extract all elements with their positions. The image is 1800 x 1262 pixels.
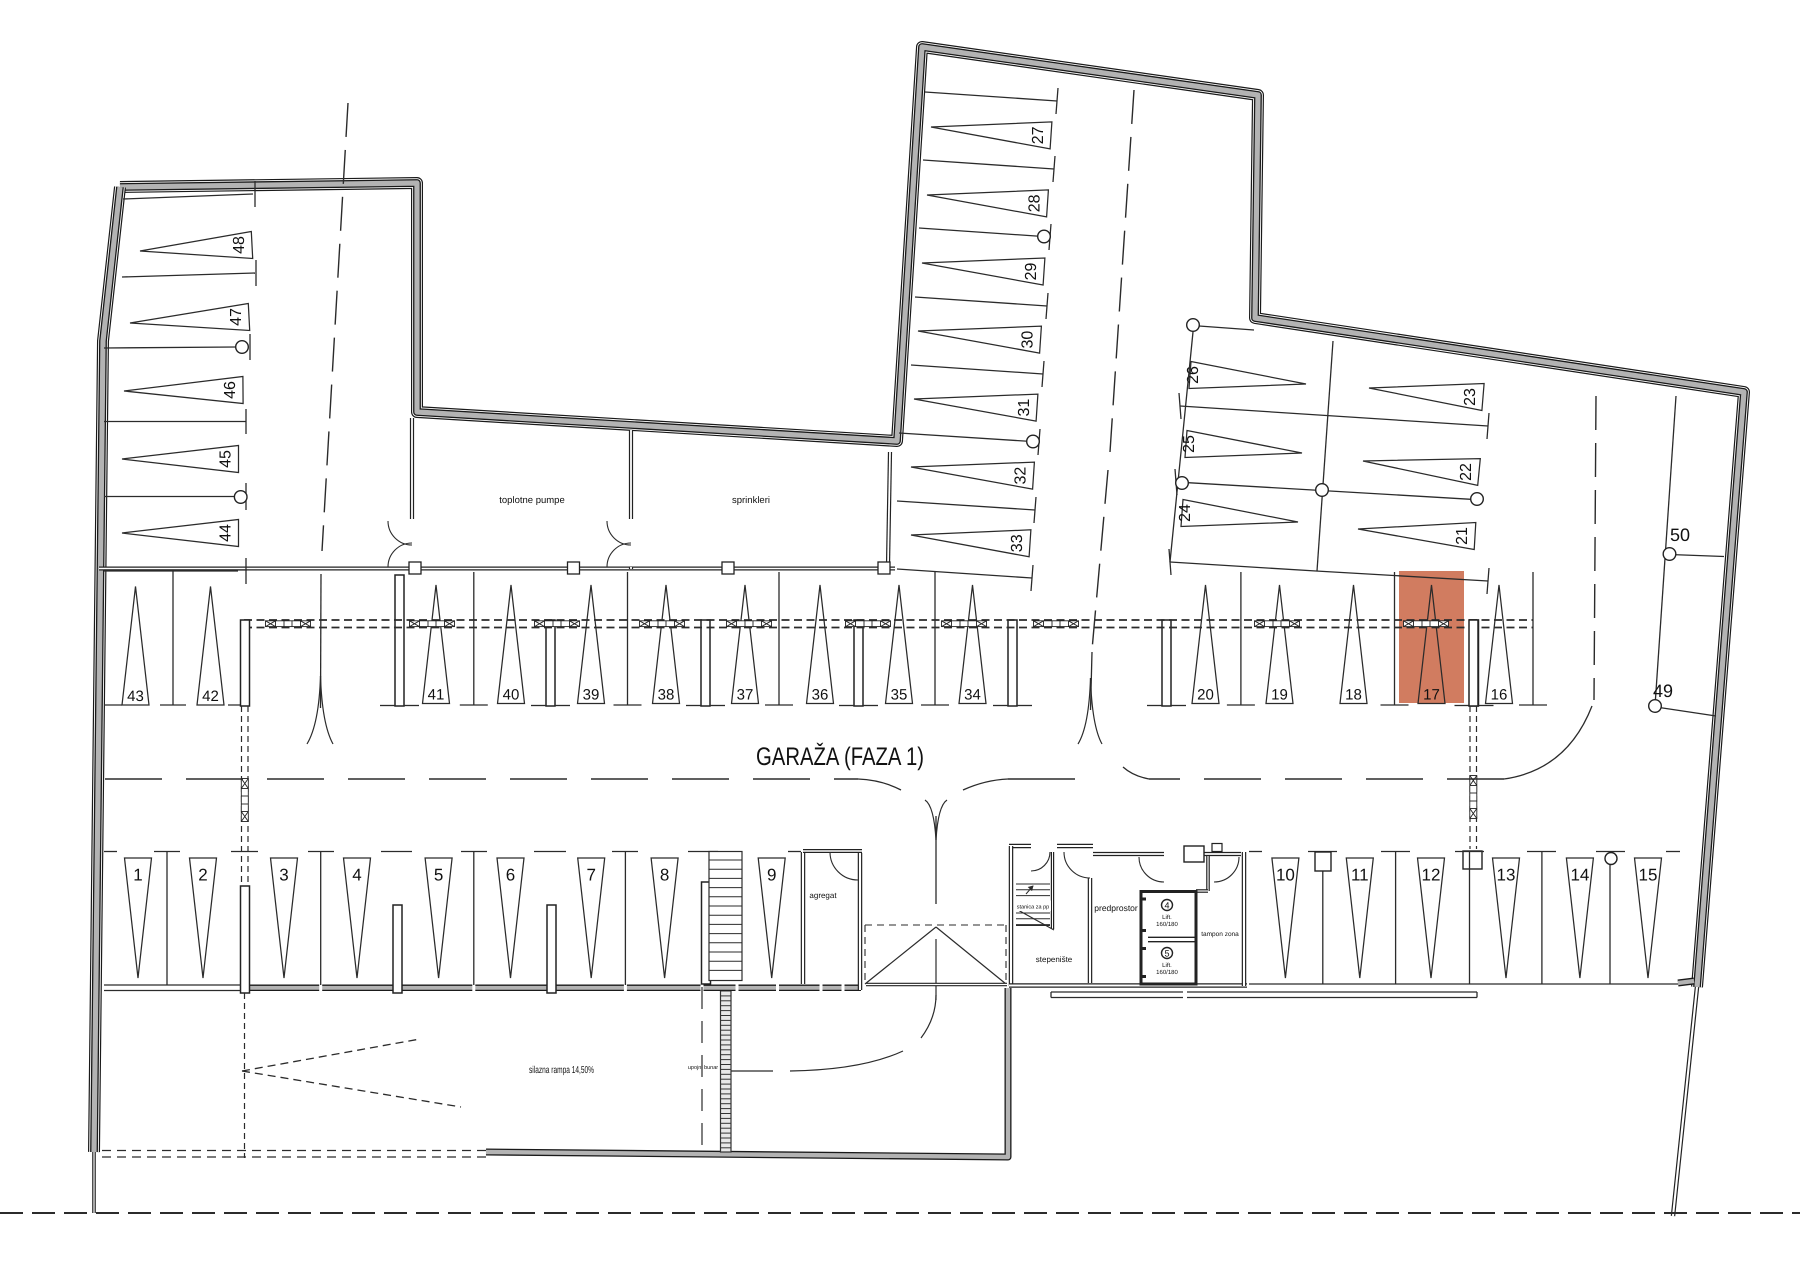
svg-text:160/180: 160/180 bbox=[1156, 921, 1178, 928]
svg-text:5: 5 bbox=[434, 866, 443, 885]
svg-text:11: 11 bbox=[1351, 866, 1369, 885]
svg-text:18: 18 bbox=[1345, 687, 1362, 704]
svg-text:27: 27 bbox=[1030, 126, 1047, 144]
svg-text:33: 33 bbox=[1009, 534, 1026, 552]
svg-text:23: 23 bbox=[1462, 388, 1479, 406]
svg-text:47: 47 bbox=[228, 308, 245, 326]
svg-text:4: 4 bbox=[1164, 901, 1169, 911]
svg-text:37: 37 bbox=[737, 687, 754, 704]
svg-text:predprostor: predprostor bbox=[1094, 903, 1138, 913]
svg-text:5: 5 bbox=[1164, 949, 1169, 959]
svg-text:46: 46 bbox=[222, 381, 239, 399]
svg-text:28: 28 bbox=[1027, 194, 1044, 212]
svg-text:160/180: 160/180 bbox=[1156, 969, 1178, 976]
svg-text:50: 50 bbox=[1670, 525, 1690, 545]
svg-text:25: 25 bbox=[1181, 435, 1198, 453]
svg-text:13: 13 bbox=[1497, 866, 1516, 885]
svg-text:41: 41 bbox=[428, 687, 445, 704]
svg-text:silazna rampa 14,50%: silazna rampa 14,50% bbox=[529, 1065, 594, 1076]
svg-text:36: 36 bbox=[812, 687, 829, 704]
svg-text:35: 35 bbox=[891, 687, 908, 704]
svg-text:31: 31 bbox=[1016, 399, 1033, 417]
svg-text:3: 3 bbox=[279, 866, 288, 885]
svg-text:45: 45 bbox=[218, 450, 235, 468]
svg-text:6: 6 bbox=[506, 866, 515, 885]
svg-text:19: 19 bbox=[1271, 687, 1288, 704]
svg-text:8: 8 bbox=[660, 866, 669, 885]
svg-text:15: 15 bbox=[1639, 866, 1658, 885]
svg-text:upojni bunar: upojni bunar bbox=[688, 1065, 718, 1071]
svg-text:10: 10 bbox=[1276, 866, 1295, 885]
svg-text:12: 12 bbox=[1422, 866, 1441, 885]
svg-text:Lift.: Lift. bbox=[1162, 914, 1172, 921]
svg-text:4: 4 bbox=[352, 866, 361, 885]
svg-text:29: 29 bbox=[1023, 263, 1040, 281]
svg-text:stepenište: stepenište bbox=[1036, 955, 1073, 964]
svg-text:2: 2 bbox=[198, 866, 207, 885]
svg-text:toplotne pumpe: toplotne pumpe bbox=[499, 495, 565, 506]
svg-text:49: 49 bbox=[1653, 681, 1673, 701]
svg-text:20: 20 bbox=[1197, 687, 1214, 704]
svg-text:38: 38 bbox=[658, 687, 675, 704]
svg-text:1: 1 bbox=[133, 866, 142, 885]
svg-text:43: 43 bbox=[127, 688, 144, 705]
svg-text:34: 34 bbox=[964, 687, 981, 704]
svg-text:GARAŽA (FAZA 1): GARAŽA (FAZA 1) bbox=[756, 742, 924, 771]
svg-text:48: 48 bbox=[231, 236, 248, 254]
svg-text:sprinkleri: sprinkleri bbox=[732, 495, 770, 506]
svg-text:21: 21 bbox=[1454, 527, 1471, 545]
svg-text:16: 16 bbox=[1491, 687, 1508, 704]
svg-text:44: 44 bbox=[218, 524, 235, 542]
svg-text:agregat: agregat bbox=[809, 891, 837, 900]
svg-text:9: 9 bbox=[767, 866, 776, 885]
svg-text:30: 30 bbox=[1020, 331, 1037, 349]
svg-text:7: 7 bbox=[586, 866, 595, 885]
svg-text:24: 24 bbox=[1177, 504, 1194, 522]
svg-text:17: 17 bbox=[1423, 687, 1440, 704]
svg-text:32: 32 bbox=[1013, 467, 1030, 485]
svg-text:stanica za pp: stanica za pp bbox=[1017, 905, 1049, 911]
svg-text:40: 40 bbox=[503, 687, 520, 704]
svg-text:42: 42 bbox=[202, 688, 219, 705]
svg-text:Lift.: Lift. bbox=[1162, 962, 1172, 969]
svg-text:14: 14 bbox=[1570, 866, 1589, 885]
svg-text:39: 39 bbox=[583, 687, 600, 704]
svg-text:tampon zona: tampon zona bbox=[1201, 931, 1239, 938]
svg-text:22: 22 bbox=[1458, 463, 1475, 481]
